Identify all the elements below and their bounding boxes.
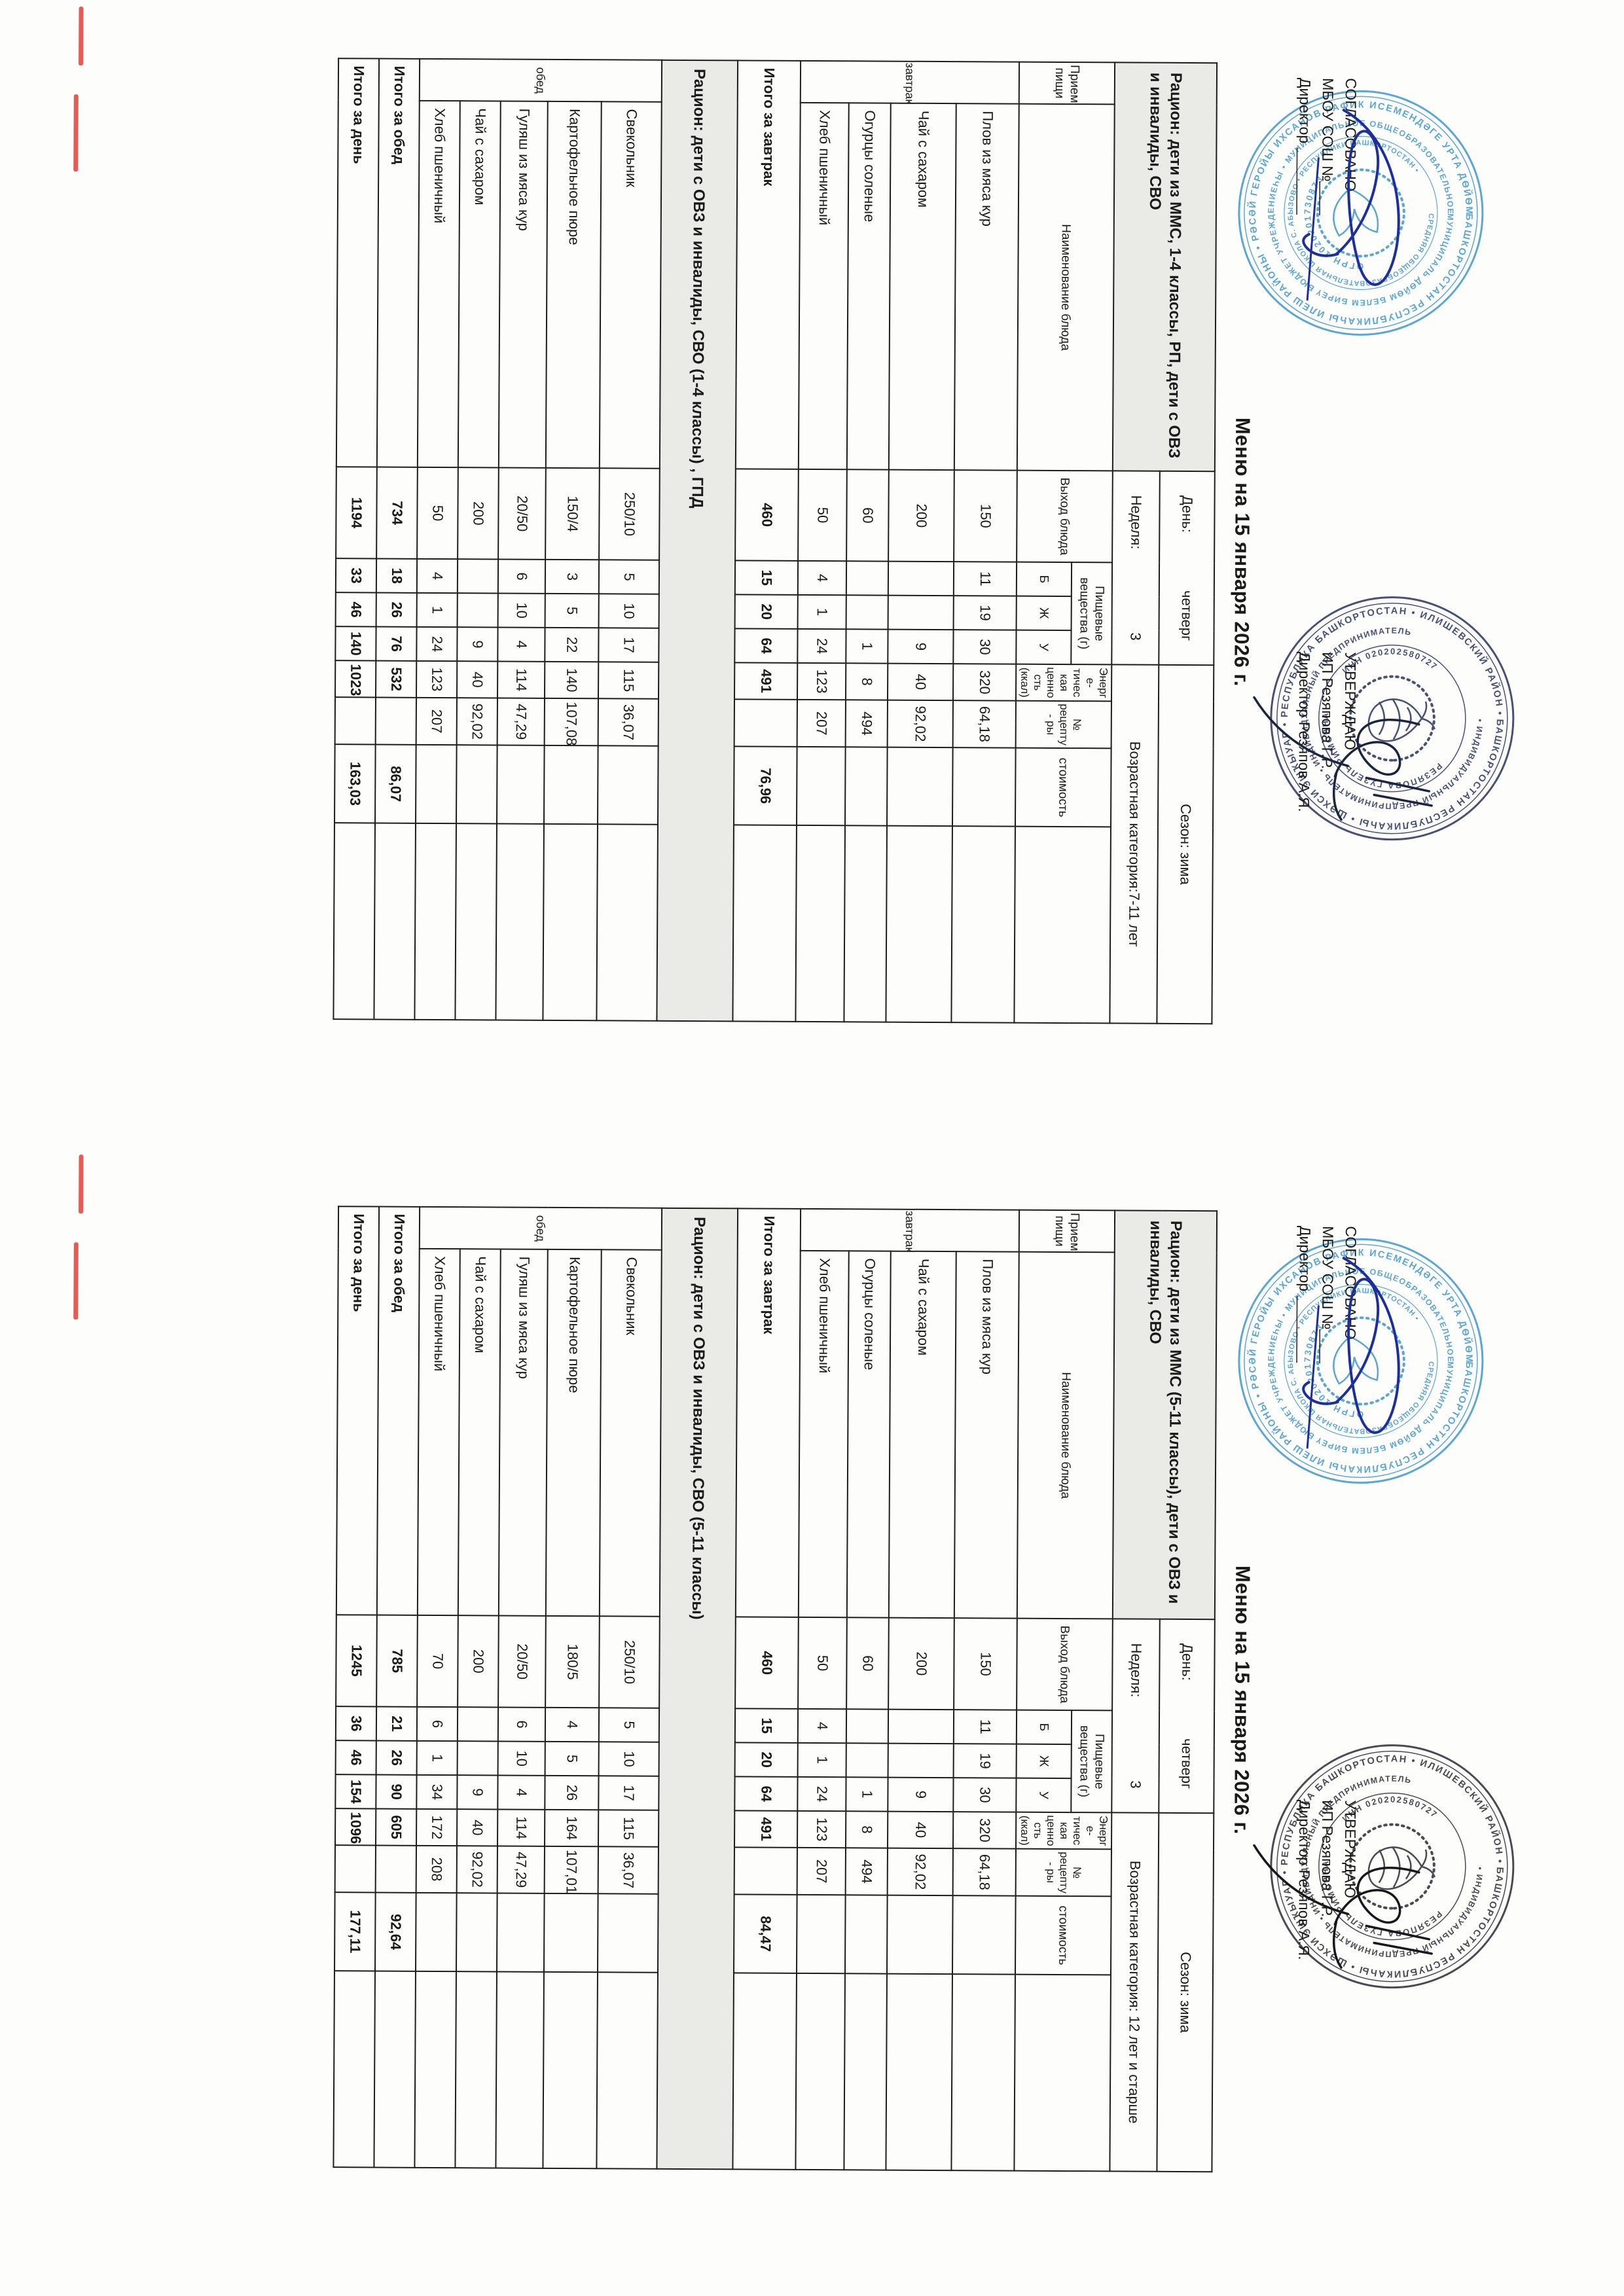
protein-cell: 15 — [735, 560, 798, 595]
protein-cell: 21 — [376, 1707, 417, 1741]
col-header-recipe: № рецепту- ры — [1016, 1849, 1111, 1897]
kcal-cell: 123 — [797, 663, 846, 700]
kcal-cell: 114 — [497, 662, 545, 698]
cost-cell — [845, 747, 888, 825]
protein-cell: 18 — [376, 559, 417, 593]
carb-cell: 30 — [953, 630, 1016, 664]
cost-cell: 92,64 — [375, 1893, 416, 1971]
fat-cell: 5 — [545, 594, 599, 628]
protein-cell — [846, 561, 888, 595]
dish-name-cell: Свекольник — [600, 1249, 662, 1616]
out-cell: 1245 — [336, 1615, 377, 1706]
empty-cell — [414, 1971, 456, 2168]
scan-artifact — [73, 1242, 79, 1319]
kcal-cell: 320 — [953, 664, 1016, 701]
col-header-recipe: № рецепту- ры — [1016, 701, 1111, 749]
cost-cell — [797, 1895, 846, 1973]
protein-cell: 4 — [417, 559, 458, 593]
protein-cell: 6 — [498, 560, 545, 594]
kcal-cell: 40 — [457, 661, 497, 698]
fat-cell: 1 — [798, 595, 846, 629]
empty-cell — [795, 1973, 845, 2170]
menu-table: Рацион: дети из ММС (5-11 классы), дети … — [333, 1206, 1218, 2172]
day-cell: День: четверг — [1159, 471, 1215, 665]
cost-cell — [456, 1893, 497, 1971]
dish-name-cell: Чай с сахаром — [889, 103, 956, 471]
out-cell: 250/10 — [599, 1616, 660, 1708]
kcal-cell: 115 — [598, 662, 659, 698]
fat-cell — [888, 1744, 954, 1778]
table-row: Рацион: дети с ОВЗ и инвалиды, СВО (1-4 … — [657, 60, 738, 1022]
recipe-no-cell: 64,18 — [953, 700, 1016, 748]
meal-group-label: завтрак — [801, 61, 1019, 104]
dish-name-cell: Чай с сахаром — [458, 101, 501, 467]
kcal-cell: 8 — [846, 1811, 888, 1848]
carb-cell: 30 — [953, 1778, 1016, 1812]
kcal-cell: 8 — [846, 663, 888, 700]
fat-cell: 19 — [954, 1744, 1017, 1778]
empty-cell — [795, 825, 845, 1022]
menu-title: Меню на 15 января 2026 г. — [1227, 2, 1257, 1102]
scan-artifact — [79, 1155, 83, 1213]
recipe-no-cell — [376, 698, 416, 745]
table-row: Итого за обед73418267653286,07 — [374, 59, 420, 1020]
season-cell: Сезон: зима — [1157, 1813, 1214, 2172]
fat-cell: 19 — [954, 596, 1017, 630]
fat-cell — [458, 593, 498, 627]
dish-name-cell: Чай с сахаром — [458, 1249, 501, 1615]
dish-name-cell: Картофельное пюре — [546, 101, 602, 468]
entrepreneur-signature — [1238, 675, 1449, 866]
section-subheader-cell: Рацион: дети с ОВЗ и инвалиды, СВО (1-4 … — [657, 60, 738, 1022]
protein-cell: 6 — [498, 1707, 545, 1741]
cost-cell — [598, 1893, 659, 1972]
dish-name-cell: Плов из мяса кур — [954, 103, 1019, 471]
carb-cell: 17 — [598, 1776, 659, 1810]
fat-cell: 26 — [376, 1741, 417, 1775]
recipe-no-cell: 494 — [846, 1848, 888, 1895]
cost-cell — [544, 745, 598, 824]
kcal-cell: 123 — [416, 661, 457, 698]
day-value: четверг — [1178, 590, 1195, 641]
table-row: Гуляш из мяса кур20/50610411447,29 — [496, 60, 548, 1020]
out-cell: 20/50 — [498, 468, 546, 560]
carb-cell: 64 — [734, 628, 797, 663]
director-signature — [1285, 98, 1417, 315]
total-label-cell: Итого за день — [336, 1206, 379, 1615]
cost-cell — [845, 1895, 888, 1973]
cost-cell: 163,03 — [334, 744, 376, 823]
out-cell: 150 — [954, 470, 1017, 562]
cost-cell: 76,96 — [734, 746, 797, 825]
carb-cell: 24 — [797, 1777, 846, 1811]
kcal-cell: 40 — [888, 664, 953, 701]
total-label-cell: Итого за завтрак — [736, 60, 801, 469]
carb-cell: 64 — [734, 1776, 797, 1811]
out-cell: 60 — [846, 469, 889, 561]
recipe-no-cell: 207 — [797, 1848, 846, 1895]
col-header-cost: стоимость — [1015, 748, 1111, 827]
fat-cell — [888, 596, 954, 630]
cost-cell — [497, 1893, 545, 1972]
protein-cell: 36 — [336, 1706, 376, 1740]
kcal-cell: 491 — [734, 1810, 797, 1848]
empty-cell — [732, 825, 797, 1022]
out-cell: 150/4 — [545, 468, 600, 560]
col-header-zh: Ж — [1017, 1744, 1072, 1778]
total-label-cell: Итого за завтрак — [736, 1208, 801, 1617]
col-header-nutrients: Пищевые вещества (г) — [1071, 562, 1112, 664]
carb-cell: 76 — [376, 627, 416, 661]
recipe-no-cell: 47,29 — [497, 1846, 545, 1893]
table-row: Чай с сахаром20094092,02 — [455, 59, 501, 1020]
out-cell: 250/10 — [599, 468, 660, 560]
age-category-cell: Возрастная категория: 12 лет и старше — [1110, 1812, 1159, 2171]
menu-table: Рацион: дети из ММС, 1-4 классы, РП, дет… — [333, 58, 1218, 1024]
out-cell: 1194 — [336, 467, 377, 558]
empty-cell — [333, 823, 375, 1019]
protein-cell: 33 — [336, 558, 376, 592]
recipe-no-cell — [734, 1847, 797, 1895]
scanned-menu-page: БАШКОРТОСТАН РЕСПУБЛИКАҺЫ ИЛЕШ РАЙОНЫ • … — [0, 0, 1624, 2296]
protein-cell — [458, 559, 498, 593]
table-row: Хлеб пшеничный504124123207 — [795, 61, 849, 1022]
week-value: 3 — [1127, 632, 1144, 640]
week-label: Неделя: — [1127, 1643, 1144, 1698]
carb-cell: 9 — [457, 627, 497, 661]
recipe-no-cell: 64,18 — [953, 1848, 1016, 1896]
dish-name-cell: Хлеб пшеничный — [418, 101, 460, 467]
protein-cell: 5 — [599, 1708, 659, 1742]
empty-cell — [543, 824, 598, 1020]
out-cell: 70 — [417, 1615, 458, 1707]
protein-cell: 15 — [735, 1708, 798, 1743]
kcal-cell: 1023 — [335, 660, 376, 697]
menu-sheet-half-2: БАШКОРТОСТАН РЕСПУБЛИКАҺЫ ИЛЕШ РАЙОНЫ • … — [0, 1144, 1624, 2296]
cost-cell — [887, 1895, 953, 1975]
fat-cell: 26 — [376, 593, 417, 627]
scan-artifact — [79, 7, 83, 65]
recipe-no-cell: 36,07 — [598, 1846, 659, 1893]
fat-cell: 46 — [336, 592, 376, 626]
col-header-empty — [1014, 827, 1111, 1024]
col-header-kcal: Энерге- тическая ценность (ккал) — [1016, 664, 1111, 702]
table-row: Итого за день119433461401023163,03 — [333, 58, 379, 1019]
col-header-u: У — [1016, 1778, 1071, 1812]
season-cell: Сезон: зима — [1157, 665, 1214, 1024]
fat-cell: 10 — [599, 1742, 659, 1776]
empty-cell — [732, 1973, 797, 2170]
empty-cell — [951, 826, 1015, 1023]
cost-cell: 84,47 — [734, 1894, 797, 1973]
col-header-dish: Наименование блюда — [1017, 1252, 1115, 1619]
kcal-cell: 532 — [376, 661, 416, 698]
kcal-cell: 172 — [416, 1809, 457, 1846]
recipe-no-cell: 207 — [797, 700, 846, 747]
table-row: Огурцы соленые6018494 — [844, 61, 891, 1022]
empty-cell — [543, 1972, 598, 2168]
col-header-b: Б — [1017, 1710, 1072, 1744]
total-label-cell: Итого за день — [336, 58, 379, 467]
day-cell: День: четверг — [1159, 1619, 1215, 1813]
empty-cell — [455, 823, 497, 1020]
fat-cell: 20 — [735, 594, 798, 629]
recipe-no-cell: 92,02 — [888, 1848, 953, 1896]
scan-artifact — [73, 94, 79, 171]
fat-cell — [846, 1743, 888, 1777]
empty-cell — [374, 1971, 416, 2168]
cost-cell — [456, 745, 497, 823]
fat-cell — [846, 595, 888, 629]
dish-name-cell: Свекольник — [600, 101, 662, 468]
dish-name-cell: Хлеб пшеничный — [418, 1249, 460, 1615]
dish-name-cell: Чай с сахаром — [889, 1251, 956, 1619]
col-header-zh: Ж — [1017, 596, 1072, 630]
week-label: Неделя: — [1127, 495, 1144, 550]
recipe-no-cell — [335, 697, 376, 744]
landscape-sheet: БАШКОРТОСТАН РЕСПУБЛИКАҺЫ ИЛЕШ РАЙОНЫ • … — [0, 0, 1624, 2296]
col-header-nutrients: Пищевые вещества (г) — [1071, 1710, 1112, 1812]
table-row: Итого за завтрак46015206449184,47 — [732, 1208, 801, 2170]
empty-cell — [844, 825, 887, 1022]
col-header-meal: Прием пищи — [1019, 1210, 1115, 1253]
meal-group-label: завтрак — [801, 1209, 1019, 1252]
carb-cell: 17 — [598, 628, 659, 662]
menu-title: Меню на 15 января 2026 г. — [1227, 1150, 1257, 2250]
table-row: Огурцы соленые6018494 — [844, 1209, 891, 2170]
table-row: Гуляш из мяса кур20/50610411447,29 — [496, 1208, 548, 2168]
empty-cell — [496, 1972, 544, 2168]
carb-cell: 9 — [888, 1778, 953, 1812]
empty-cell — [951, 1974, 1015, 2171]
col-header-u: У — [1016, 630, 1071, 664]
fat-cell: 5 — [545, 1742, 599, 1776]
protein-cell: 4 — [798, 1709, 846, 1743]
kcal-cell: 605 — [376, 1809, 416, 1846]
recipe-no-cell: 47,29 — [497, 698, 545, 745]
cost-cell — [952, 747, 1016, 827]
day-value: четверг — [1178, 1738, 1195, 1789]
empty-cell — [374, 823, 416, 1020]
dish-name-cell: Плов из мяса кур — [954, 1251, 1019, 1618]
table-row: завтракПлов из мяса кур15011193032064,18 — [951, 1210, 1019, 2171]
fat-cell: 10 — [498, 1741, 545, 1775]
carb-cell: 34 — [416, 1775, 457, 1809]
out-cell: 460 — [735, 1617, 799, 1709]
table-row: Картофельное пюре150/43522140107,08 — [543, 60, 602, 1020]
cost-cell — [887, 747, 953, 827]
col-header-empty — [1014, 1975, 1111, 2172]
ration-header-cell: Рацион: дети из ММС, 1-4 классы, РП, дет… — [1113, 62, 1217, 471]
entrepreneur-signature — [1238, 1823, 1449, 2014]
cost-cell — [797, 747, 846, 825]
kcal-cell: 114 — [497, 1810, 545, 1846]
empty-cell — [844, 1973, 887, 2170]
age-category-cell: Возрастная категория:7-11 лет — [1110, 664, 1159, 1023]
kcal-cell: 123 — [797, 1811, 846, 1848]
week-cell: Неделя: 3 — [1111, 471, 1160, 664]
section-subheader-text: Рацион: дети с ОВЗ и инвалиды, СВО (5-11… — [687, 1217, 710, 1734]
table-row: Хлеб пшеничный504124123207 — [795, 1209, 849, 2170]
total-label-cell: Итого за обед — [377, 59, 420, 467]
dish-name-cell: Гуляш из мяса кур — [499, 101, 548, 467]
fat-cell: 1 — [417, 1741, 458, 1775]
meal-group-label: обед — [420, 59, 662, 102]
empty-cell — [886, 826, 952, 1023]
out-cell: 50 — [798, 469, 847, 561]
out-cell: 200 — [458, 467, 499, 559]
carb-cell: 24 — [416, 627, 457, 661]
recipe-no-cell — [335, 1845, 376, 1892]
recipe-no-cell: 207 — [416, 698, 457, 745]
out-cell: 200 — [458, 1615, 499, 1707]
director-signature — [1285, 1246, 1417, 1463]
section-subheader-text: Рацион: дети с ОВЗ и инвалиды, СВО (1-4 … — [687, 69, 710, 586]
kcal-cell: 40 — [888, 1812, 953, 1849]
fat-cell: 10 — [498, 594, 545, 628]
fat-cell: 1 — [417, 593, 458, 627]
cost-cell: 86,07 — [375, 745, 416, 823]
cost-cell — [497, 745, 545, 824]
fat-cell: 1 — [798, 1743, 846, 1777]
empty-cell — [414, 823, 456, 1020]
protein-cell — [888, 1710, 954, 1744]
carb-cell: 22 — [545, 628, 598, 662]
table-row: Итого за завтрак46015206449176,96 — [732, 60, 801, 1022]
table-row: Хлеб пшеничный504124123207 — [414, 59, 460, 1020]
col-header-kcal: Энерге- тическая ценность (ккал) — [1016, 1812, 1111, 1850]
kcal-cell: 140 — [545, 662, 598, 698]
empty-cell — [333, 1971, 375, 2167]
dish-name-cell: Картофельное пюре — [546, 1249, 602, 1616]
out-cell: 200 — [888, 1618, 954, 1710]
kcal-cell: 115 — [598, 1810, 659, 1846]
carb-cell: 1 — [846, 1777, 888, 1811]
carb-cell: 9 — [457, 1775, 497, 1809]
protein-cell — [458, 1707, 498, 1741]
dish-name-cell: Хлеб пшеничный — [799, 103, 849, 469]
carb-cell: 24 — [797, 629, 846, 663]
protein-cell: 11 — [954, 1710, 1017, 1744]
kcal-cell: 164 — [545, 1810, 598, 1846]
table-row: Итого за обед78521269060592,64 — [374, 1207, 420, 2168]
protein-cell — [846, 1709, 888, 1743]
carb-cell: 9 — [888, 630, 953, 664]
out-cell: 20/50 — [498, 1615, 546, 1707]
week-value: 3 — [1127, 1780, 1144, 1788]
out-cell: 180/5 — [545, 1616, 600, 1708]
dish-name-cell: Огурцы соленые — [847, 1251, 891, 1617]
recipe-no-cell: 494 — [846, 700, 888, 747]
fat-cell — [458, 1741, 498, 1775]
col-header-dish: Наименование блюда — [1017, 104, 1115, 471]
col-header-meal: Прием пищи — [1019, 62, 1115, 105]
recipe-no-cell: 92,02 — [457, 1846, 497, 1893]
recipe-no-cell — [376, 1846, 416, 1893]
table-row: обедСвекольник250/105101711536,07 — [596, 60, 662, 1021]
empty-cell — [596, 1972, 658, 2168]
cost-cell — [416, 1893, 457, 1971]
protein-cell — [888, 562, 954, 596]
carb-cell: 4 — [497, 1775, 545, 1809]
kcal-cell: 320 — [953, 1812, 1016, 1849]
meal-group-label: обед — [420, 1207, 662, 1250]
out-cell: 734 — [376, 467, 418, 559]
table-row: Картофельное пюре180/54526164107,01 — [543, 1208, 602, 2168]
carb-cell: 154 — [335, 1774, 376, 1808]
kcal-cell: 1096 — [335, 1808, 376, 1845]
table-row: Хлеб пшеничный706134172208 — [414, 1207, 460, 2168]
menu-sheet-half-1: БАШКОРТОСТАН РЕСПУБЛИКАҺЫ ИЛЕШ РАЙОНЫ • … — [0, 0, 1624, 1152]
carb-cell: 26 — [545, 1776, 598, 1810]
dish-name-cell: Гуляш из мяса кур — [499, 1249, 548, 1615]
carb-cell: 1 — [846, 629, 888, 663]
empty-cell — [886, 1974, 952, 2171]
recipe-no-cell: 92,02 — [888, 700, 953, 748]
day-label: День: — [1178, 1643, 1195, 1681]
recipe-no-cell: 36,07 — [598, 698, 659, 745]
empty-cell — [496, 824, 544, 1020]
out-cell: 785 — [376, 1615, 418, 1707]
ration-header-cell: Рацион: дети из ММС (5-11 классы), дети … — [1113, 1210, 1217, 1619]
table-row: Чай с сахаром20094092,02 — [455, 1207, 501, 2168]
cost-cell — [598, 745, 659, 824]
table-row: Рацион: дети с ОВЗ и инвалиды, СВО (5-11… — [657, 1208, 738, 2170]
recipe-no-cell: 107,08 — [545, 698, 598, 745]
kcal-cell: 40 — [457, 1809, 497, 1846]
out-cell: 60 — [846, 1617, 889, 1709]
kcal-cell: 491 — [734, 662, 797, 700]
fat-cell: 46 — [336, 1740, 376, 1774]
cost-cell — [952, 1895, 1016, 1975]
out-cell: 150 — [954, 1618, 1017, 1710]
col-header-out: Выход блюда — [1017, 471, 1113, 563]
fat-cell: 10 — [599, 594, 659, 628]
protein-cell: 6 — [417, 1707, 458, 1741]
dish-name-cell: Хлеб пшеничный — [799, 1251, 849, 1617]
carb-cell: 140 — [335, 626, 376, 660]
fat-cell: 20 — [735, 1742, 798, 1777]
dish-name-cell: Огурцы соленые — [847, 103, 891, 469]
recipe-no-cell: 92,02 — [457, 698, 497, 745]
recipe-no-cell: 208 — [416, 1846, 457, 1893]
cost-cell: 177,11 — [334, 1892, 376, 1971]
col-header-cost: стоимость — [1015, 1896, 1111, 1975]
out-cell: 50 — [417, 467, 458, 559]
protein-cell: 4 — [545, 1708, 599, 1742]
col-header-out: Выход блюда — [1017, 1619, 1113, 1711]
recipe-no-cell: 107,01 — [545, 1846, 598, 1893]
table-row: Итого за день124536461541096177,11 — [333, 1206, 379, 2167]
protein-cell: 5 — [599, 560, 659, 594]
table-row: завтракПлов из мяса кур15011193032064,18 — [951, 62, 1019, 1023]
total-label-cell: Итого за обед — [377, 1207, 420, 1615]
carb-cell: 90 — [376, 1775, 416, 1809]
empty-cell — [455, 1971, 497, 2168]
recipe-no-cell — [734, 699, 797, 747]
week-cell: Неделя: 3 — [1111, 1619, 1160, 1812]
col-header-b: Б — [1017, 562, 1072, 596]
section-subheader-cell: Рацион: дети с ОВЗ и инвалиды, СВО (5-11… — [657, 1208, 738, 2170]
protein-cell: 4 — [798, 561, 846, 595]
out-cell: 200 — [888, 470, 954, 562]
table-row: Чай с сахаром20094092,02 — [886, 62, 956, 1023]
protein-cell: 3 — [545, 560, 599, 594]
cost-cell — [416, 745, 457, 823]
carb-cell: 4 — [497, 628, 545, 662]
day-label: День: — [1178, 495, 1195, 533]
table-row: обедСвекольник250/105101711536,07 — [596, 1208, 662, 2169]
